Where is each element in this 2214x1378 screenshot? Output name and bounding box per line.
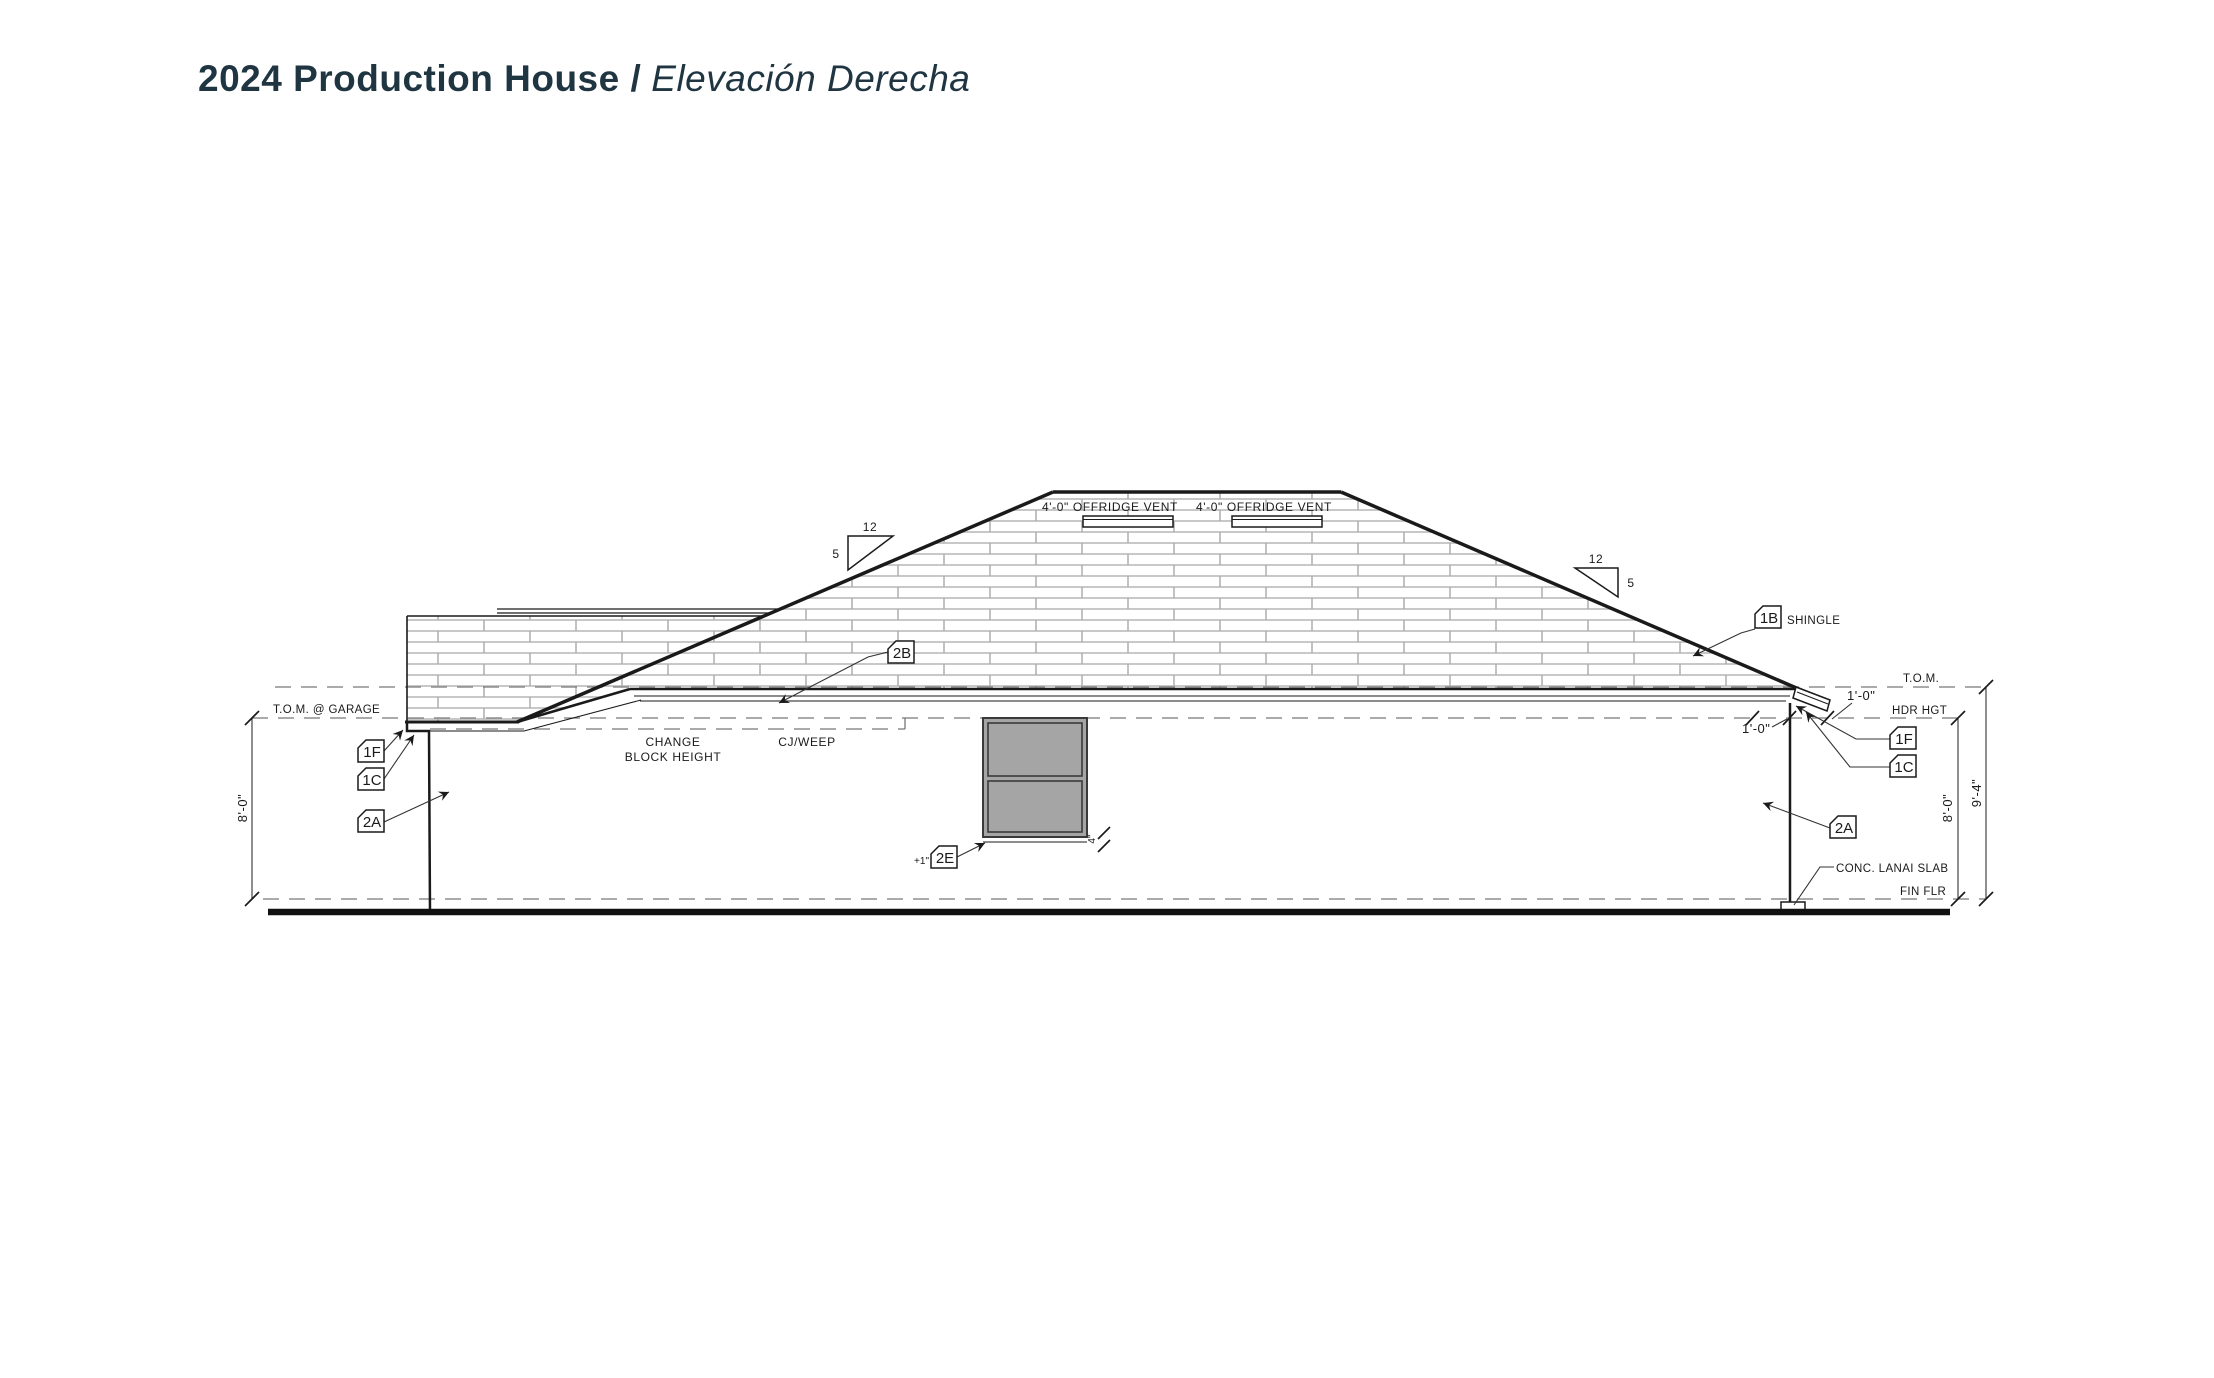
vent-label-right: 4'-0" OFFRIDGE VENT xyxy=(1196,500,1332,514)
elevation-drawing: 4'-0" OFFRIDGE VENT 4'-0" OFFRIDGE VENT … xyxy=(0,0,2214,1378)
vent-right xyxy=(1232,516,1322,527)
keynote-2e: 2E xyxy=(931,843,985,868)
window-sash-lower xyxy=(988,781,1082,832)
plus-one-note: +1" xyxy=(914,856,929,867)
pitch-run-left: 12 xyxy=(863,520,878,534)
change-block-note-1: CHANGE xyxy=(646,735,701,749)
conc-lanai-note: CONC. LANAI SLAB xyxy=(1836,863,1949,875)
svg-text:2A: 2A xyxy=(1835,820,1853,837)
svg-text:2E: 2E xyxy=(936,850,954,867)
walls xyxy=(407,703,1805,912)
svg-text:1C: 1C xyxy=(1894,759,1913,776)
window xyxy=(983,718,1087,842)
fin-flr-label: FIN FLR xyxy=(1900,886,1946,898)
svg-text:1C: 1C xyxy=(362,772,381,789)
hdr-label: HDR HGT xyxy=(1892,705,1947,717)
svg-text:1F: 1F xyxy=(1895,731,1913,748)
total-height-dim: 9'-4" xyxy=(1969,779,1984,807)
tom-label: T.O.M. xyxy=(1903,673,1939,685)
pitch-indicator-left: 12 5 xyxy=(832,520,893,570)
cj-weep-note: CJ/WEEP xyxy=(778,735,836,749)
window-sash-upper xyxy=(988,723,1082,776)
vent-left xyxy=(1083,516,1173,527)
vent-label-left: 4'-0" OFFRIDGE VENT xyxy=(1042,500,1178,514)
keynote-1f-left: 1F xyxy=(358,730,403,762)
svg-text:2B: 2B xyxy=(893,645,911,662)
change-block-note-2: BLOCK HEIGHT xyxy=(625,750,722,764)
right-wall-height-dim: 8'-0" xyxy=(1940,794,1955,822)
tom-garage-label: T.O.M. @ GARAGE xyxy=(273,704,380,716)
svg-text:1F: 1F xyxy=(363,744,381,761)
shingle-note: SHINGLE xyxy=(1787,615,1840,627)
svg-text:1B: 1B xyxy=(1760,610,1778,627)
sill-dim: 4" xyxy=(1087,834,1098,844)
notes: CHANGE BLOCK HEIGHT CJ/WEEP CONC. LANAI … xyxy=(625,735,1949,905)
pitch-rise-right: 5 xyxy=(1627,576,1634,590)
svg-text:2A: 2A xyxy=(363,814,381,831)
keynote-2a-left: 2A xyxy=(358,792,449,832)
pitch-rise-left: 5 xyxy=(832,547,839,561)
left-wall-height-dim: 8'-0" xyxy=(235,794,250,822)
keynote-1b: 1B SHINGLE xyxy=(1693,606,1840,656)
left-wall xyxy=(407,722,430,912)
keynote-2a-right: 2A xyxy=(1763,803,1856,838)
overhang-dim-left: 1'-0" xyxy=(1742,721,1770,736)
pitch-run-right: 12 xyxy=(1589,552,1604,566)
overhang-dim-right: 1'-0" xyxy=(1847,688,1875,703)
pitch-indicator-right: 12 5 xyxy=(1575,552,1635,597)
